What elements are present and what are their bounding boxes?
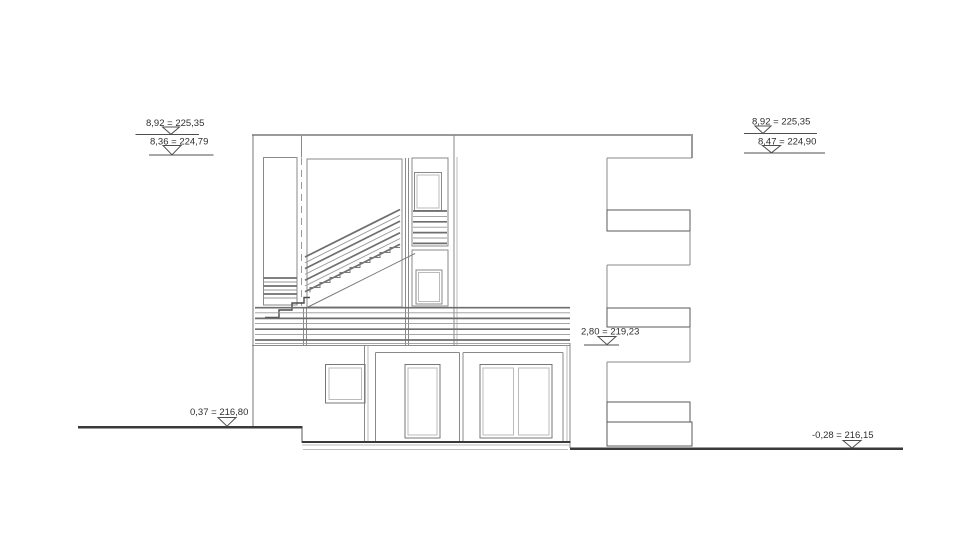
staircase <box>265 210 415 318</box>
level-marker-top-right-lower: 8,47 = 224,90 <box>744 137 825 154</box>
level-marker-ground-left: 0,37 = 216,80 <box>190 407 248 426</box>
level-triangle-icon <box>755 126 771 133</box>
level-triangle-icon <box>763 146 781 153</box>
entrance-door-bay <box>376 353 460 442</box>
level-triangle-icon <box>843 441 861 449</box>
building-outline <box>252 135 693 427</box>
upper-landing-bay <box>412 158 448 306</box>
level-marker-top-left-upper: 8,92 = 225,35 <box>136 118 205 135</box>
stair-stringer <box>308 254 415 308</box>
balcony-slab-lower <box>607 402 690 422</box>
level-triangle-icon <box>163 127 180 134</box>
double-door <box>480 365 552 439</box>
level-triangle-icon <box>598 337 616 345</box>
level-triangle-icon <box>163 146 181 155</box>
building-elevation-svg: 8,92 = 225,35 8,36 = 224,79 8,92 = 225,3… <box>0 0 960 555</box>
balcony-slab-upper <box>607 210 690 231</box>
terrace-railing <box>255 308 570 344</box>
elevation-drawing-canvas: 8,92 = 225,35 8,36 = 224,79 8,92 = 225,3… <box>0 0 960 555</box>
single-door <box>405 365 440 439</box>
lower-landing-window-bay <box>412 250 448 306</box>
ground-floor <box>252 343 571 450</box>
balcony-slab-middle <box>607 308 690 327</box>
level-triangle-icon <box>218 418 236 427</box>
double-door-bay <box>463 353 563 442</box>
left-stair-window <box>264 158 298 306</box>
level-label: 2,80 = 219,23 <box>581 327 639 338</box>
level-marker-top-right-upper: 8,92 = 225,35 <box>744 117 817 134</box>
right-wing <box>607 158 692 446</box>
wing-base-block <box>607 422 692 446</box>
front-facade-walls <box>302 135 458 346</box>
level-label: 0,37 = 216,80 <box>190 407 248 418</box>
level-label: -0,28 = 216,15 <box>812 430 874 441</box>
level-marker-terrace: 2,80 = 219,23 <box>581 327 639 346</box>
small-window <box>326 365 366 404</box>
level-marker-ground-right: -0,28 = 216,15 <box>812 430 874 448</box>
level-marker-top-left-lower: 8,36 = 224,79 <box>149 137 214 156</box>
